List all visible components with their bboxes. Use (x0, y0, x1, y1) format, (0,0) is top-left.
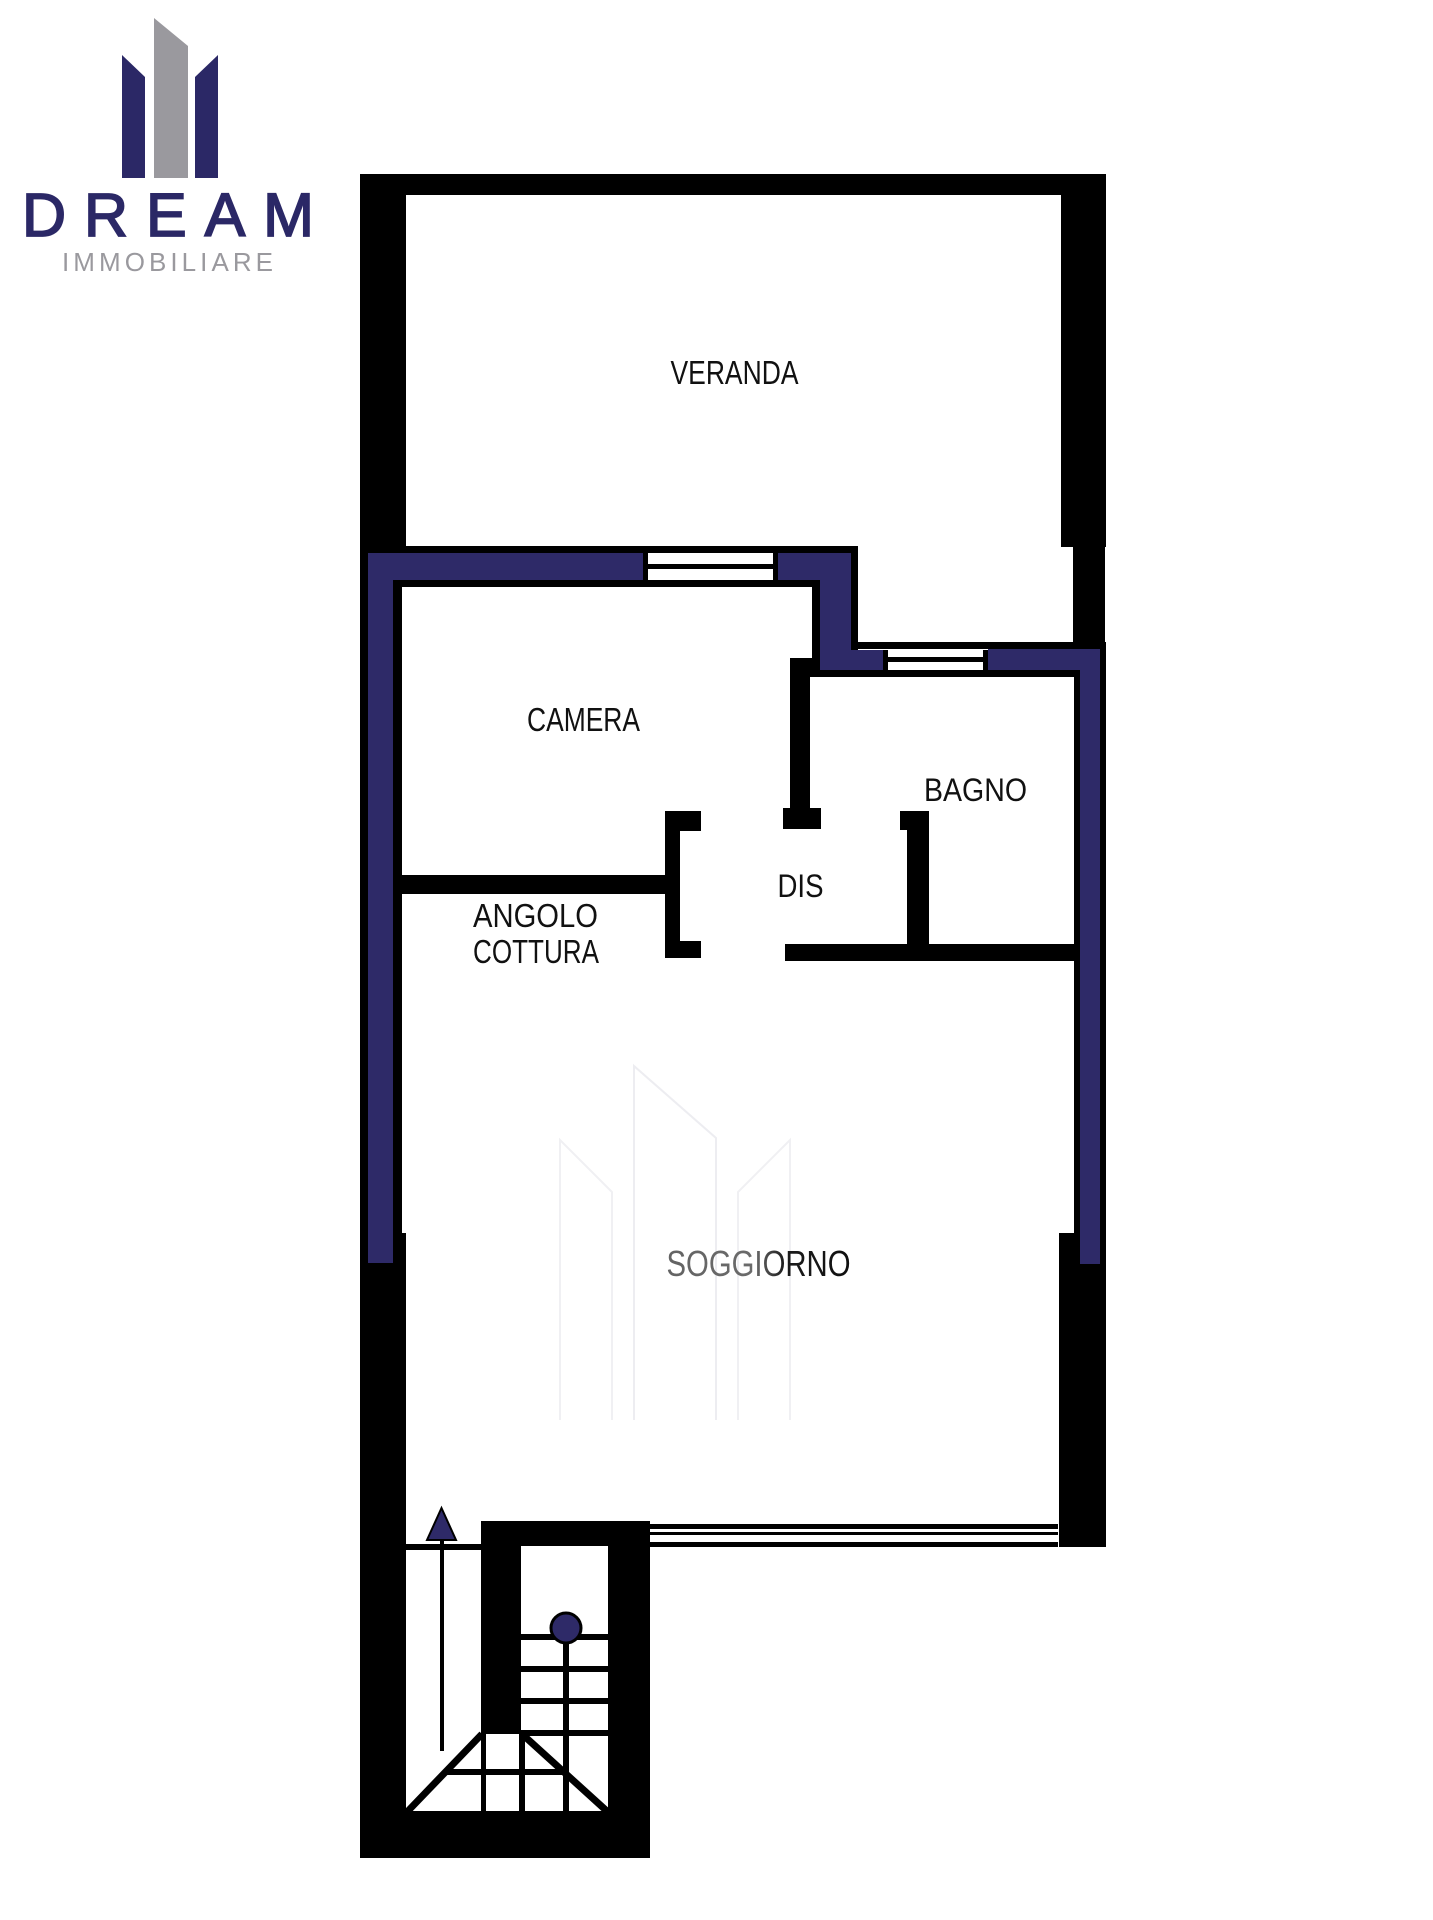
svg-text:CAMERA: CAMERA (527, 701, 640, 738)
svg-text:SOGGIORNO: SOGGIORNO (667, 1243, 851, 1284)
svg-text:VERANDA: VERANDA (671, 354, 799, 391)
svg-text:DREAM: DREAM (22, 181, 314, 249)
svg-text:DIS: DIS (778, 868, 824, 904)
svg-text:BAGNO: BAGNO (924, 772, 1027, 808)
svg-text:ANGOLO: ANGOLO (473, 897, 598, 934)
svg-text:COTTURA: COTTURA (473, 933, 599, 970)
